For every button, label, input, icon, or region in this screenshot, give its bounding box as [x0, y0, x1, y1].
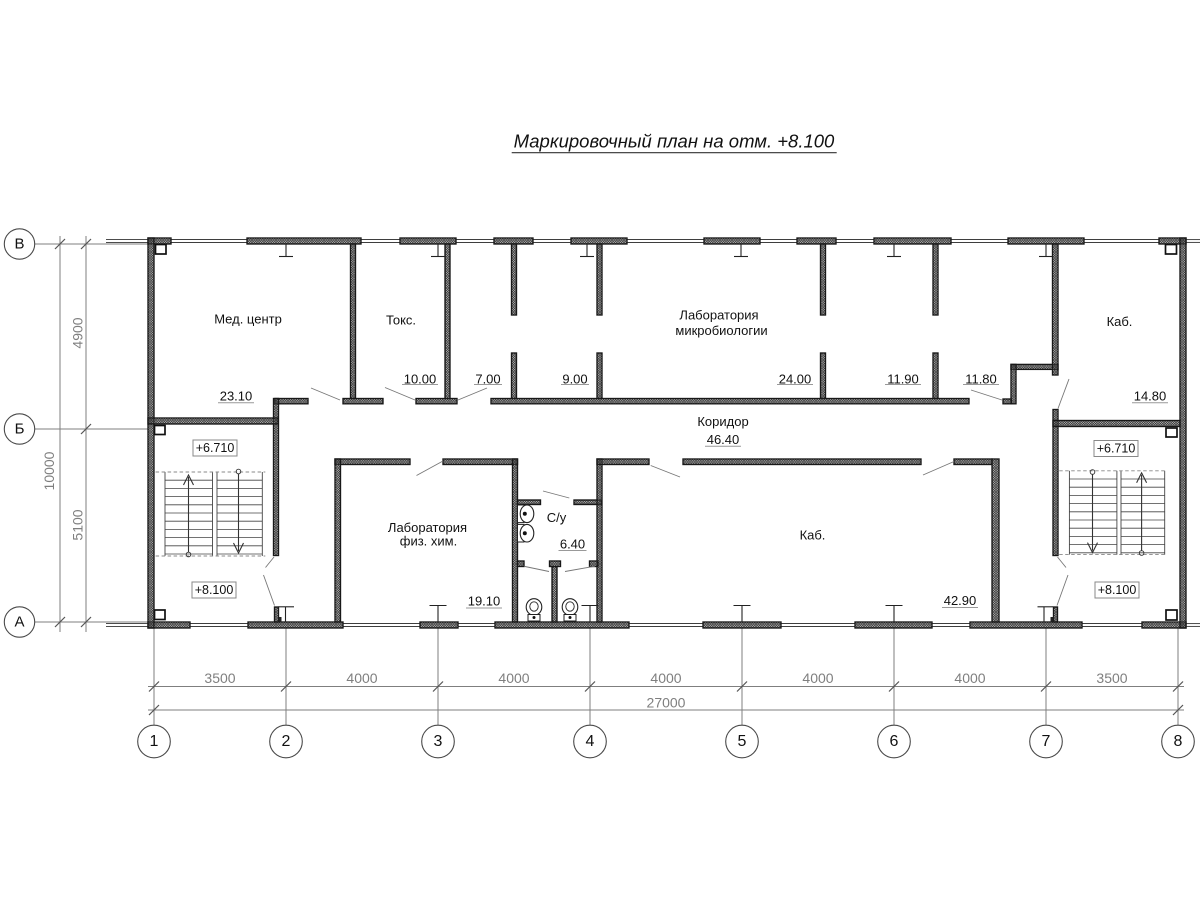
svg-text:+8.100: +8.100 — [195, 583, 234, 597]
svg-text:4: 4 — [586, 733, 595, 750]
svg-text:6: 6 — [890, 733, 899, 750]
svg-text:3500: 3500 — [204, 670, 235, 686]
svg-text:3500: 3500 — [1096, 670, 1127, 686]
svg-text:Каб.: Каб. — [800, 528, 826, 543]
svg-text:физ. хим.: физ. хим. — [400, 534, 457, 549]
svg-text:4000: 4000 — [498, 670, 529, 686]
svg-text:1: 1 — [150, 733, 159, 750]
svg-text:4000: 4000 — [954, 670, 985, 686]
svg-text:Коридор: Коридор — [697, 414, 748, 429]
svg-text:27000: 27000 — [647, 695, 686, 711]
svg-text:14.80: 14.80 — [1134, 389, 1167, 404]
svg-text:+6.710: +6.710 — [196, 441, 235, 455]
svg-text:4000: 4000 — [802, 670, 833, 686]
svg-text:+8.100: +8.100 — [1098, 583, 1137, 597]
svg-text:5: 5 — [738, 733, 747, 750]
svg-text:5100: 5100 — [70, 509, 86, 540]
svg-text:4000: 4000 — [650, 670, 681, 686]
svg-text:Токс.: Токс. — [386, 313, 416, 328]
svg-text:Лаборатория: Лаборатория — [679, 308, 758, 323]
svg-text:19.10: 19.10 — [468, 594, 501, 609]
svg-text:Каб.: Каб. — [1107, 314, 1133, 329]
svg-text:6.40: 6.40 — [560, 537, 585, 552]
svg-text:3: 3 — [434, 733, 443, 750]
svg-text:С/у: С/у — [547, 510, 567, 525]
svg-text:23.10: 23.10 — [220, 389, 253, 404]
svg-text:Мед. центр: Мед. центр — [214, 312, 282, 327]
svg-text:Маркировочный план на отм. +8.: Маркировочный план на отм. +8.100 — [514, 131, 835, 152]
svg-text:4000: 4000 — [346, 670, 377, 686]
svg-text:микробиологии: микробиологии — [675, 323, 767, 338]
svg-text:Б: Б — [15, 421, 25, 438]
svg-text:4900: 4900 — [70, 317, 86, 348]
svg-text:46.40: 46.40 — [707, 432, 740, 447]
svg-text:7: 7 — [1042, 733, 1051, 750]
svg-text:42.90: 42.90 — [944, 593, 977, 608]
svg-text:+6.710: +6.710 — [1097, 442, 1136, 456]
svg-text:8: 8 — [1174, 733, 1183, 750]
svg-text:А: А — [14, 614, 24, 631]
svg-text:2: 2 — [282, 733, 291, 750]
svg-text:В: В — [14, 236, 24, 253]
svg-text:10000: 10000 — [41, 451, 57, 490]
